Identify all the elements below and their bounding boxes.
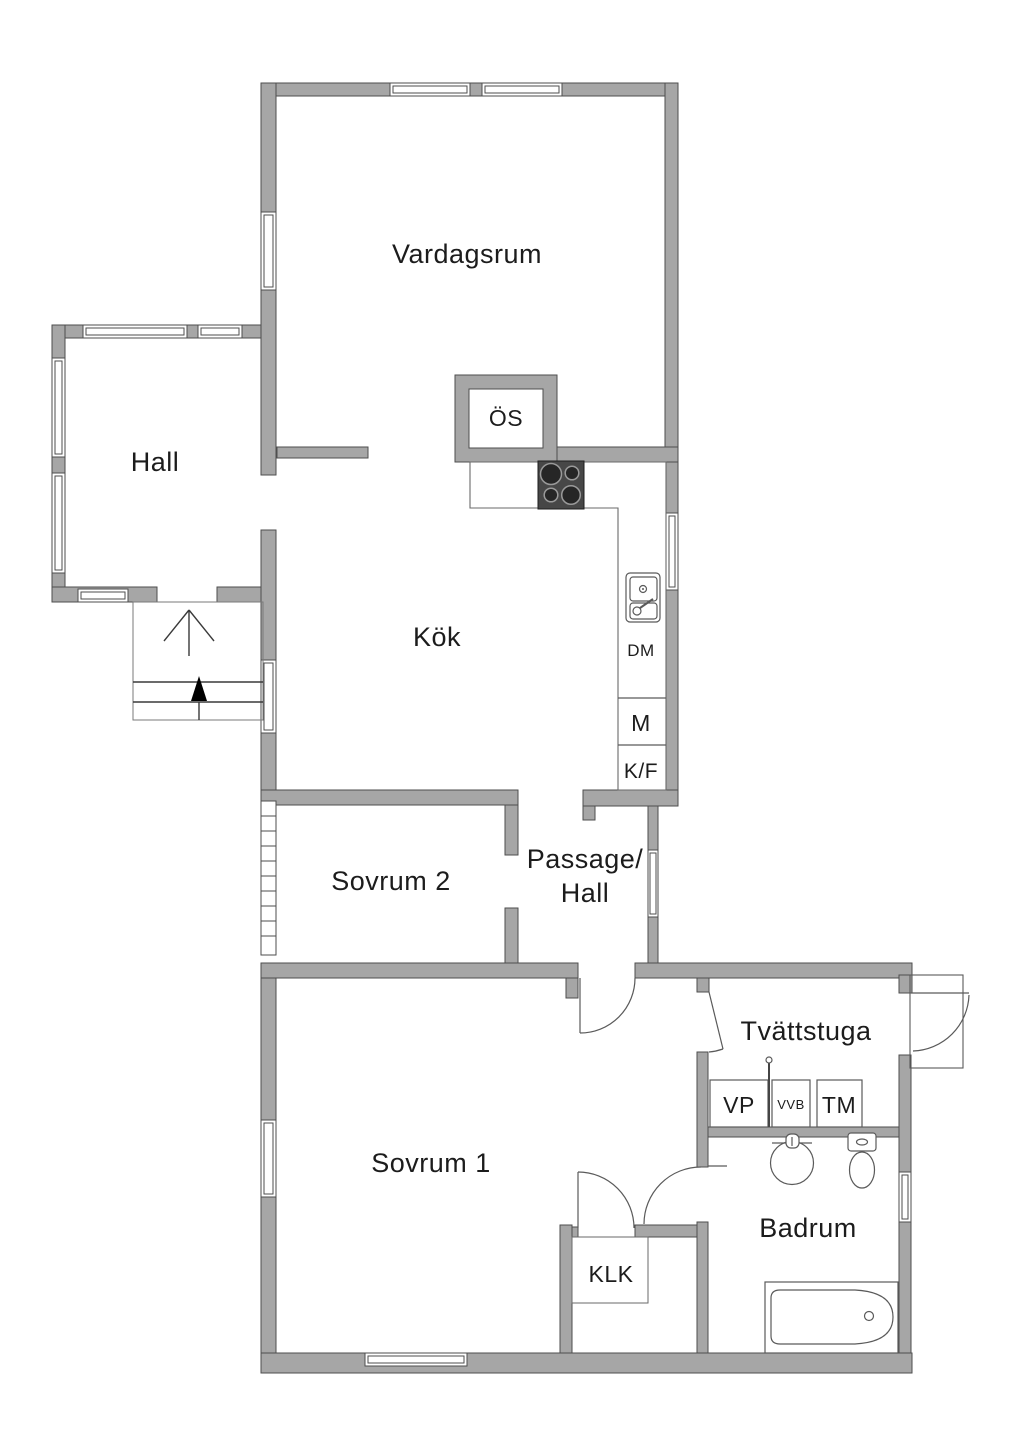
pipe-valve-icon — [766, 1057, 772, 1063]
room-label-klk: KLK — [589, 1261, 634, 1287]
room-label-badrum: Badrum — [759, 1213, 857, 1243]
label-washing-machine: TM — [822, 1092, 856, 1118]
kitchen-counter — [470, 462, 666, 790]
door-passage-sovrum1 — [580, 978, 635, 1033]
direction-arrow-icon — [191, 676, 207, 701]
room-label-passage-1: Passage/ — [527, 844, 644, 874]
room-label-sovrum2: Sovrum 2 — [331, 866, 451, 896]
label-fridge-freezer: K/F — [624, 760, 658, 783]
stove-icon — [538, 461, 584, 509]
door-exterior-laundry — [910, 975, 969, 1068]
door-badrum — [644, 1166, 727, 1224]
window — [899, 1172, 911, 1222]
window — [365, 1353, 467, 1366]
floor-plan-drawing: Vardagsrum Hall Kök ÖS Sovrum 2 Passage/… — [0, 0, 1024, 1448]
room-label-hall: Hall — [131, 447, 180, 477]
label-microwave: M — [631, 710, 651, 736]
room-label-passage-2: Hall — [561, 878, 610, 908]
room-label-os: ÖS — [489, 405, 523, 431]
window — [52, 473, 65, 573]
room-label-tvattstuga: Tvättstuga — [740, 1016, 872, 1046]
room-label-sovrum1: Sovrum 1 — [371, 1148, 491, 1178]
window — [390, 83, 470, 96]
window — [666, 513, 678, 590]
floor-plan: Vardagsrum Hall Kök ÖS Sovrum 2 Passage/… — [0, 0, 1024, 1448]
door-klk — [578, 1172, 634, 1228]
label-heat-pump: VP — [723, 1092, 755, 1118]
bathroom-sink-icon — [771, 1134, 814, 1185]
bathtub-icon — [765, 1282, 898, 1353]
door-tvattstuga — [709, 992, 723, 1052]
ladder-window — [261, 801, 276, 955]
window — [52, 358, 65, 457]
toilet-icon — [848, 1133, 876, 1188]
room-label-kok: Kök — [413, 622, 461, 652]
window — [83, 325, 187, 338]
window — [78, 589, 128, 602]
kitchen-sink-icon — [626, 573, 660, 622]
window — [261, 212, 276, 290]
window — [198, 325, 242, 338]
window — [261, 1120, 276, 1197]
label-water-heater: VVB — [777, 1097, 805, 1112]
entrance-stairs — [133, 602, 263, 720]
window — [648, 850, 658, 917]
label-dishwasher: DM — [627, 641, 654, 660]
room-label-vardagsrum: Vardagsrum — [392, 239, 542, 269]
window — [482, 83, 562, 96]
